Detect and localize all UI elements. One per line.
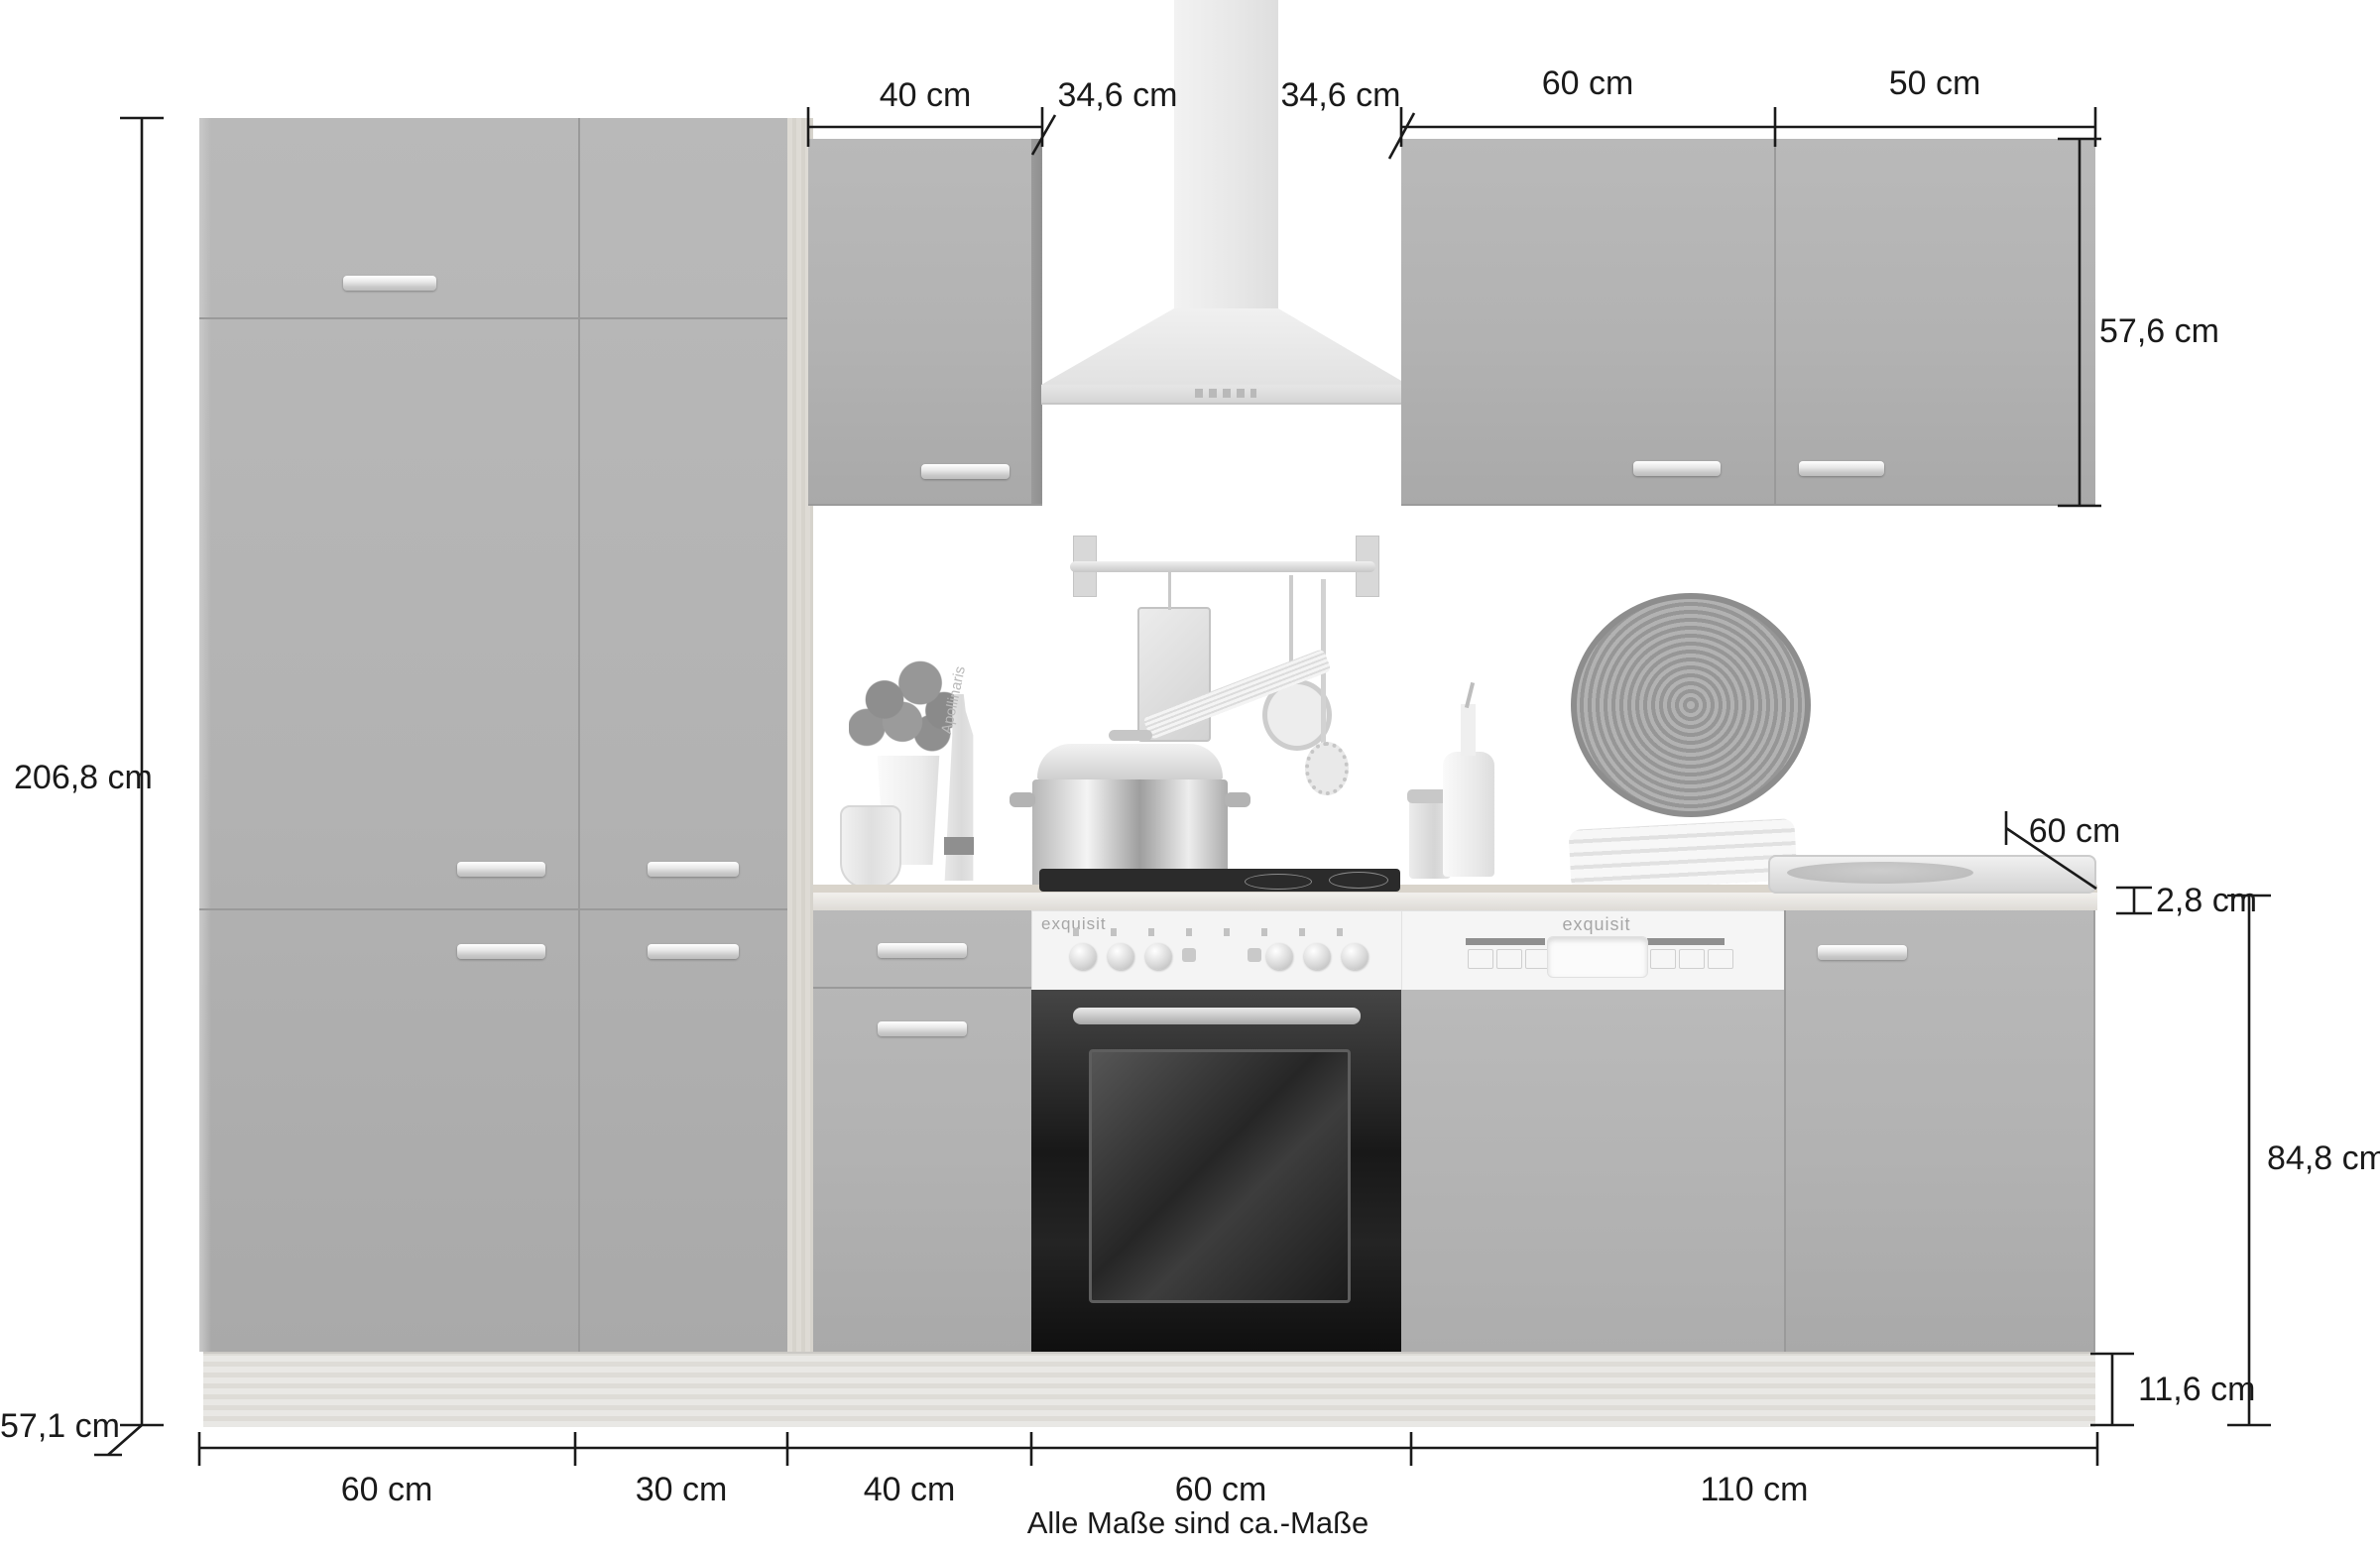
cooktop-ring-2 bbox=[1329, 872, 1388, 889]
oven-knob-4 bbox=[1266, 943, 1293, 970]
pot-handle-right bbox=[1225, 792, 1250, 807]
tall-cabinet-block bbox=[199, 118, 787, 1352]
dim-label-bottom-110: 110 cm bbox=[1701, 1472, 1809, 1508]
dim-label-gap-346-right: 34,6 cm bbox=[1281, 77, 1401, 114]
dim-label-bottom-60a: 60 cm bbox=[341, 1472, 433, 1508]
upper-cabinet-50 bbox=[1775, 139, 2095, 506]
pot-lid-knob bbox=[1109, 730, 1152, 741]
dim-label-plinth-height: 11,6 cm bbox=[2138, 1372, 2255, 1408]
oven-indicator-button-2 bbox=[1248, 948, 1261, 962]
cooktop-ring-1 bbox=[1245, 874, 1312, 890]
dishwasher-button-4 bbox=[1650, 949, 1676, 969]
dim-label-top-40: 40 cm bbox=[880, 77, 972, 114]
oven-door-handle bbox=[1073, 1008, 1361, 1024]
oven-knob-2 bbox=[1108, 943, 1134, 970]
drinking-glass bbox=[840, 805, 901, 889]
dim-label-top-50: 50 cm bbox=[1889, 65, 1981, 102]
upper-cabinets-seam bbox=[1774, 139, 1776, 506]
oven-door-window bbox=[1089, 1049, 1351, 1303]
dishwasher-button-5 bbox=[1679, 949, 1705, 969]
oil-bottle-body bbox=[1443, 752, 1494, 877]
product-dimension-diagram: Apollinaris exquisit exquisit bbox=[0, 0, 2380, 1555]
dishwasher-button-2 bbox=[1496, 949, 1522, 969]
dishwasher-recessed-handle bbox=[1547, 936, 1648, 978]
base-cabinet-40 bbox=[813, 910, 1031, 1352]
tall-cabinet-upper-door-seam bbox=[199, 317, 787, 319]
tall-cabinet-left-edge-highlight bbox=[199, 118, 211, 1352]
oven-knob-3 bbox=[1145, 943, 1172, 970]
oil-bottle-neck bbox=[1461, 704, 1476, 756]
dim-label-bottom-40: 40 cm bbox=[864, 1472, 956, 1508]
dishwasher-button-6 bbox=[1708, 949, 1733, 969]
worktop-front-edge bbox=[813, 893, 2097, 910]
narrow-cabinet-middle-door-handle bbox=[648, 862, 739, 877]
dishwasher-door bbox=[1401, 990, 1785, 1352]
base-cabinet-40-drawer-seam bbox=[813, 987, 1031, 989]
measurements-note: Alle Maße sind ca.-Maße bbox=[1027, 1505, 1369, 1541]
sink-cabinet-left-seam bbox=[1784, 910, 1786, 1352]
asparagus-bundle bbox=[1569, 818, 1798, 892]
oven-knob-1 bbox=[1070, 943, 1097, 970]
grater-hook-wire bbox=[1168, 572, 1171, 610]
narrow-cabinet-bottom-door-handle bbox=[648, 944, 739, 959]
tall-cabinet-vertical-seam bbox=[578, 118, 580, 1352]
fridge-cabinet-middle-door-handle bbox=[457, 862, 545, 877]
dim-label-base-height: 84,8 cm bbox=[2267, 1140, 2380, 1177]
dishwasher-button-1 bbox=[1468, 949, 1493, 969]
upper-cabinet-40 bbox=[808, 139, 1042, 506]
tall-cabinet-lower-door-seam bbox=[199, 908, 787, 910]
plinth bbox=[203, 1352, 2095, 1427]
dim-label-total-height: 206,8 cm bbox=[14, 760, 133, 796]
water-bottle-label-band bbox=[944, 837, 974, 855]
dim-label-counter-depth: 60 cm bbox=[2029, 813, 2121, 850]
hood-control-buttons bbox=[1195, 389, 1256, 398]
pot-lid bbox=[1037, 744, 1223, 779]
dishwasher-brand-label: exquisit bbox=[1532, 914, 1661, 935]
spaghetti-server-head bbox=[1305, 742, 1349, 795]
dim-label-bottom-60b: 60 cm bbox=[1175, 1472, 1267, 1508]
tall-cabinet-top-door-handle bbox=[343, 276, 436, 291]
sink-base-cabinet bbox=[1785, 910, 2095, 1352]
upper-cabinet-40-side-shade bbox=[1031, 139, 1042, 506]
upper-cabinet-50-handle bbox=[1799, 461, 1884, 476]
upper-cabinets-bottom-edge bbox=[1401, 504, 2095, 506]
dishwasher-display-bar-left bbox=[1466, 938, 1545, 945]
oven-indicator-button-1 bbox=[1182, 948, 1196, 962]
dim-label-upper-height: 57,6 cm bbox=[2099, 313, 2219, 350]
upper-cabinet-40-handle bbox=[921, 464, 1010, 479]
upper-cabinet-40-bottom-edge bbox=[808, 504, 1042, 506]
dim-label-tall-depth: 57,1 cm bbox=[0, 1408, 109, 1445]
upper-cabinet-60-handle bbox=[1633, 461, 1721, 476]
oven-knob-5 bbox=[1304, 943, 1331, 970]
fridge-cabinet-bottom-door-handle bbox=[457, 944, 545, 959]
dim-label-top-60: 60 cm bbox=[1542, 65, 1634, 102]
dim-label-gap-346-left: 34,6 cm bbox=[1058, 77, 1178, 114]
sink-basin bbox=[1787, 862, 1973, 884]
woven-plate bbox=[1571, 593, 1811, 817]
base-cabinet-40-door-handle bbox=[878, 1021, 967, 1036]
base-cabinet-40-drawer-handle bbox=[878, 943, 967, 958]
pot-handle-left bbox=[1010, 792, 1035, 807]
sink-cabinet-door-handle bbox=[1818, 945, 1907, 960]
hood-chimney-duct bbox=[1174, 0, 1278, 310]
base-row-right-edge bbox=[2093, 910, 2095, 1352]
upper-cabinet-60 bbox=[1401, 139, 1775, 506]
dishwasher-display-bar-right bbox=[1647, 938, 1725, 945]
oven-icon-row bbox=[1073, 928, 1370, 936]
wall-rail-bar bbox=[1070, 561, 1375, 572]
hood-canopy bbox=[1041, 308, 1408, 385]
dim-label-bottom-30: 30 cm bbox=[636, 1472, 728, 1508]
oven-knob-6 bbox=[1342, 943, 1368, 970]
dim-label-worktop-thickness: 2,8 cm bbox=[2156, 883, 2257, 919]
